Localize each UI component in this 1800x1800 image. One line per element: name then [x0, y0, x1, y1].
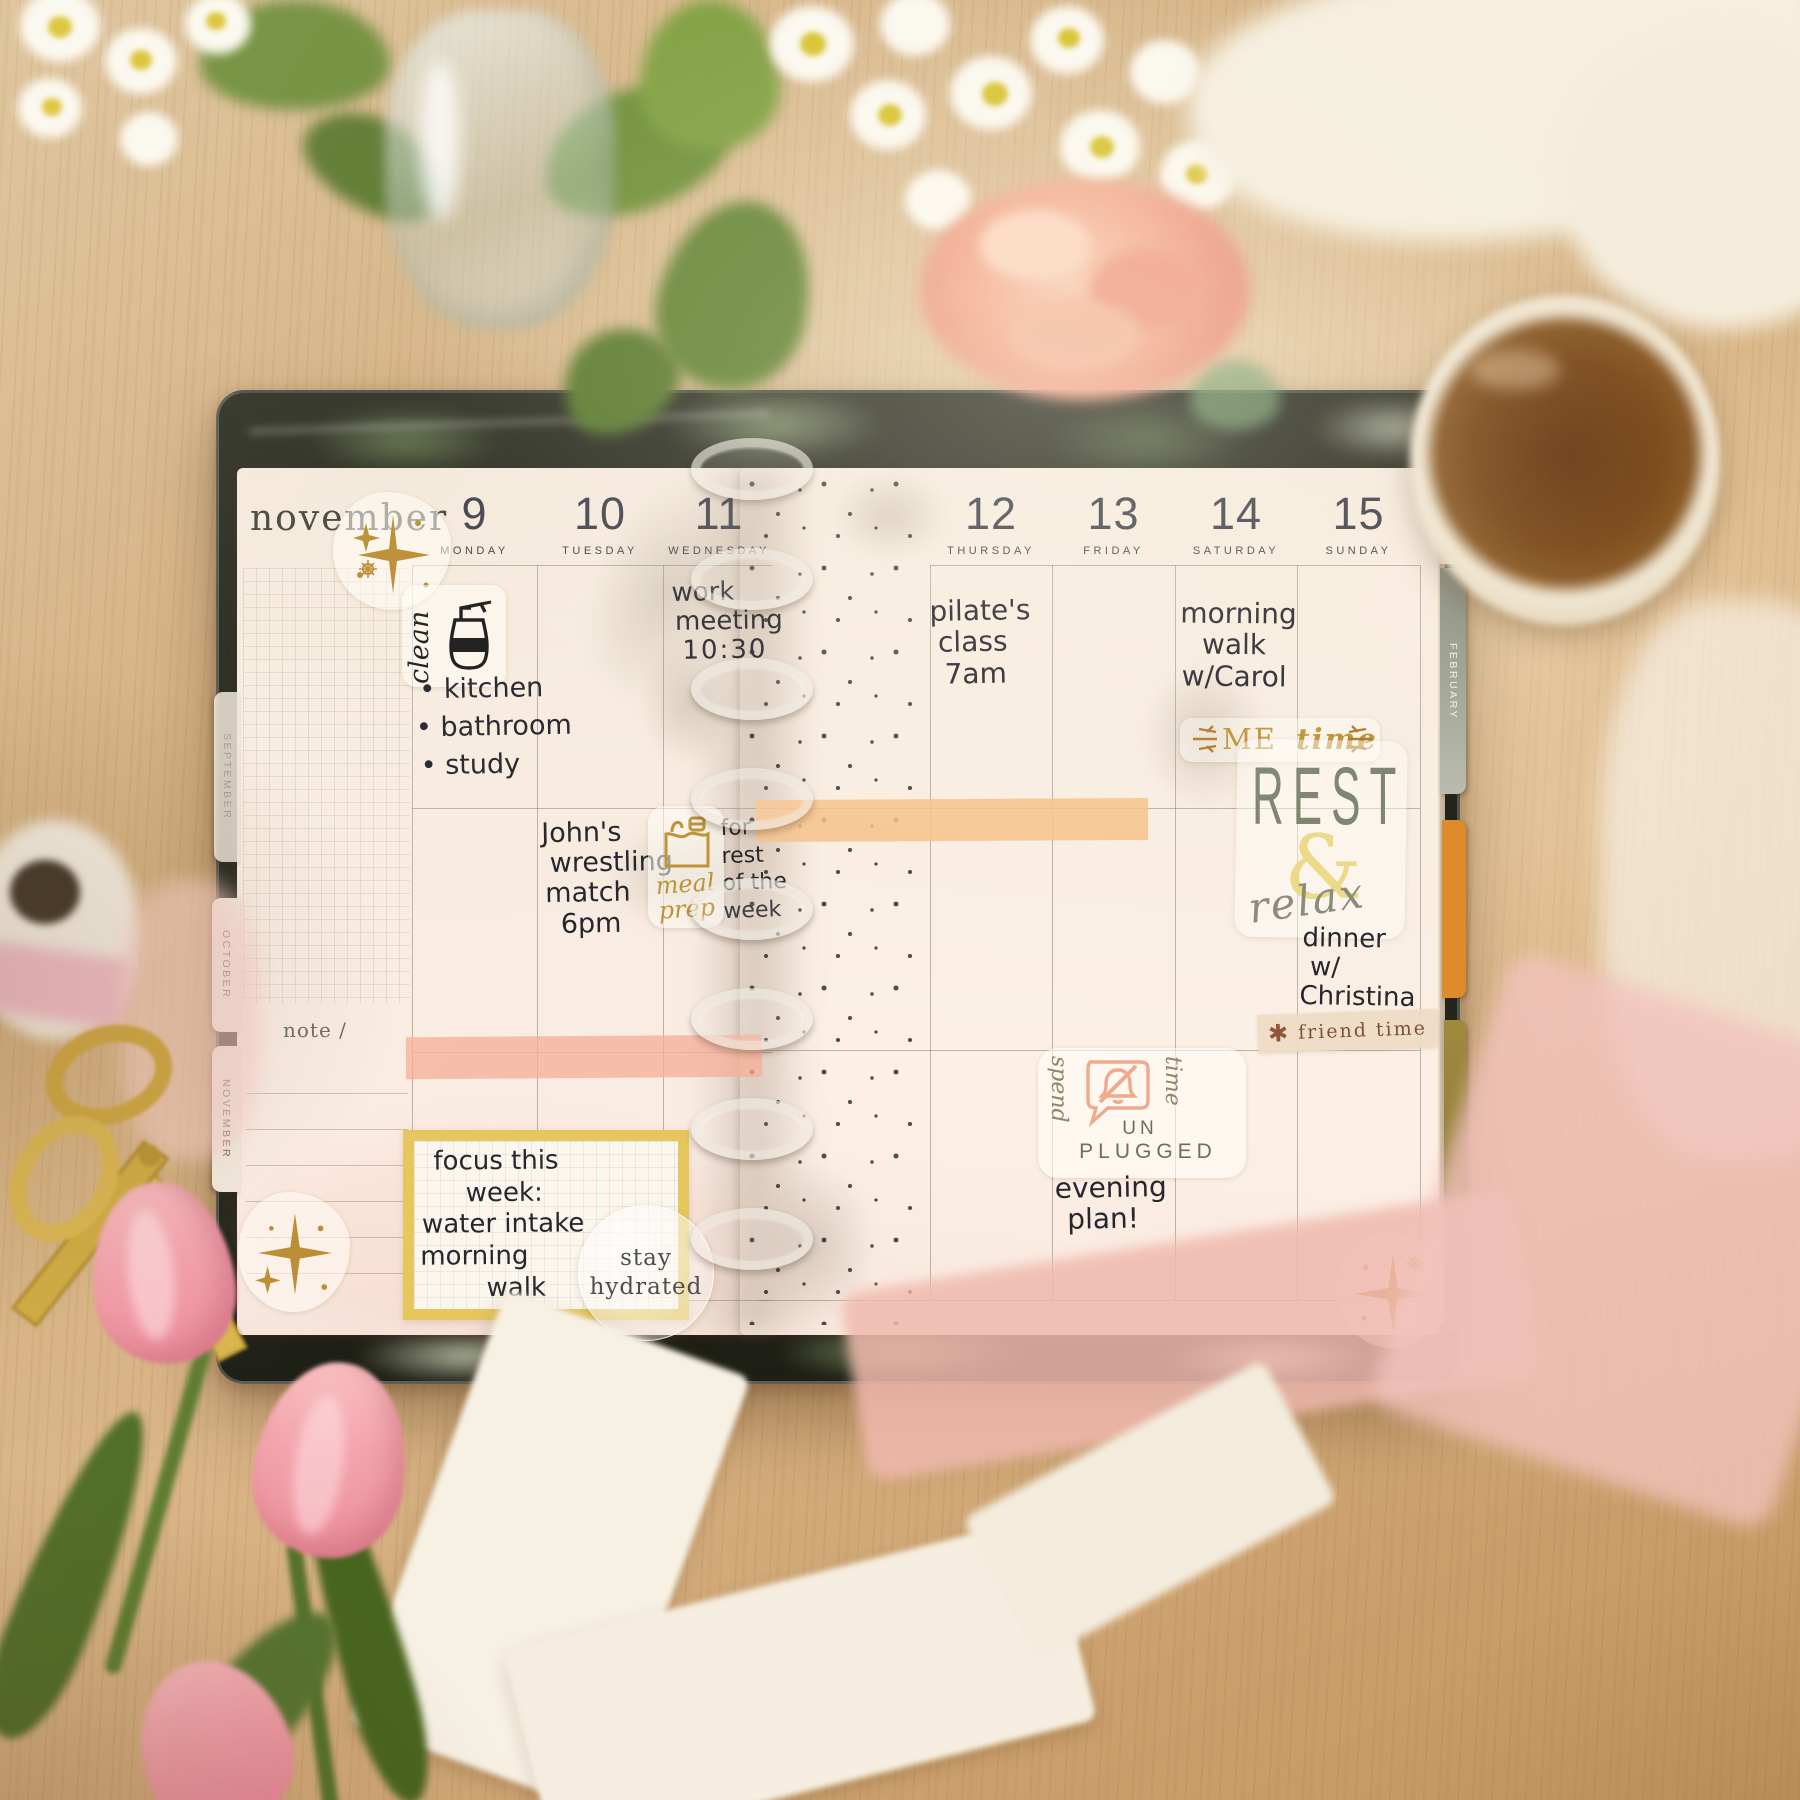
leaf: [1190, 360, 1280, 430]
hw-line: bathroom: [440, 709, 572, 742]
daisy-center: [800, 32, 826, 56]
daisy-flower: [120, 112, 178, 166]
glass-vase: [385, 10, 615, 330]
binder-disc: [691, 1098, 813, 1160]
sidebar-grid-paper: [243, 568, 410, 1004]
grid-line: [930, 565, 1420, 566]
binder-disc: [691, 548, 813, 610]
tab-february: FEBRUARY: [1440, 568, 1466, 794]
daisy-center: [1186, 164, 1208, 184]
day-header: 12 THURSDAY: [930, 488, 1052, 557]
sun-rays-icon: [1183, 724, 1219, 754]
daisy-flower: [880, 0, 950, 56]
day-name: SUNDAY: [1297, 545, 1420, 557]
daisy-center: [1058, 28, 1080, 48]
highlight-stripe-right: [756, 798, 1148, 842]
binder-disc: [691, 878, 813, 940]
asterisk-icon: ✱: [1268, 1019, 1289, 1049]
hw-line: morning: [1180, 597, 1297, 629]
hw-line: • study: [420, 744, 572, 784]
day-number: 14: [1175, 488, 1297, 540]
hw-line: • kitchen: [419, 669, 571, 709]
day-number: 13: [1052, 488, 1175, 540]
binder-disc: [691, 768, 813, 830]
binder-disc: [691, 1208, 813, 1270]
tab-label: SEPTEMBER: [221, 733, 233, 820]
day-header: 13 FRIDAY: [1052, 488, 1175, 557]
spray-bottle-icon: [441, 592, 497, 676]
daisy-center: [878, 104, 902, 126]
hw-line: water intake: [422, 1209, 585, 1242]
binder-disc: [691, 438, 813, 500]
hw-line: 7am: [944, 657, 1032, 690]
hw-line: • bathroom: [416, 706, 572, 747]
daisy-center: [130, 50, 152, 70]
hw-line: focus this: [433, 1145, 584, 1178]
hw-line: Christina: [1299, 982, 1415, 1013]
hw-line: evening: [1054, 1171, 1167, 1204]
entry-pilates-class: pilate's class 7am: [929, 594, 1032, 690]
grid-line: [1420, 565, 1421, 1300]
entry-dinner: dinner w/ Christina: [1301, 924, 1416, 1013]
hw-line: class: [938, 625, 1032, 658]
entry-evening-plan: evening plan!: [1054, 1171, 1167, 1236]
grid-line: [1175, 565, 1176, 1300]
day-number: 15: [1297, 488, 1420, 540]
binder-disc: [691, 988, 813, 1050]
hw-line: hydrated: [588, 1273, 704, 1302]
bullet: •: [419, 674, 435, 705]
entry-clean-list: • kitchen • bathroom • study: [419, 669, 573, 785]
day-header: 10 TUESDAY: [537, 488, 663, 557]
plugged-label: PLUGGED: [1064, 1140, 1232, 1164]
day-name: SATURDAY: [1175, 545, 1297, 557]
entry-focus-week: focus this week: water intake morning wa…: [427, 1145, 585, 1305]
hw-line: stay: [588, 1244, 704, 1273]
spool-hole: [10, 860, 80, 924]
entry-morning-walk: morning walk w/Carol: [1180, 597, 1297, 692]
tab-orange: [1442, 820, 1466, 998]
friend-time-sticker: ✱ friend time: [1257, 1009, 1438, 1053]
hw-line: w/Carol: [1182, 660, 1297, 692]
day-name: TUESDAY: [537, 545, 663, 557]
hw-line: w/: [1310, 953, 1416, 984]
day-name: FRIDAY: [1052, 545, 1175, 557]
hw-line: morning: [420, 1240, 585, 1273]
hw-line: rest: [721, 840, 786, 870]
tab-label: FEBRUARY: [1447, 643, 1459, 720]
daisy-center: [206, 12, 226, 30]
peony-petal: [1010, 300, 1140, 370]
binder-disc: [691, 658, 813, 720]
daisy-center: [48, 16, 72, 38]
spend-label: spend: [1046, 1056, 1071, 1140]
day-header: 15 SUNDAY: [1297, 488, 1420, 557]
un-label: UN: [1108, 1118, 1172, 1140]
hw-line: dinner: [1302, 924, 1416, 955]
wood-desk: note / november 9 MONDAY 10 TUESDAY 11 W…: [0, 0, 1800, 1800]
friend-time-label: friend time: [1298, 1017, 1428, 1043]
hw-line: walk: [1202, 629, 1297, 661]
daisy-center: [982, 82, 1008, 106]
day-number: 10: [537, 488, 663, 540]
hw-line: kitchen: [444, 672, 544, 705]
vase-highlight: [420, 60, 460, 220]
hw-line: pilate's: [929, 594, 1031, 627]
day-name: THURSDAY: [930, 545, 1052, 557]
hw-line: week:: [466, 1177, 585, 1210]
leaf: [640, 0, 780, 150]
daisy-center: [1090, 136, 1114, 158]
tab-september: SEPTEMBER: [214, 692, 240, 862]
hw-line: meeting: [675, 606, 783, 637]
stay-hydrated-label: stay hydrated: [588, 1244, 704, 1302]
peony-petal: [980, 210, 1090, 280]
coffee-glint: [1470, 350, 1560, 390]
day-header: 14 SATURDAY: [1175, 488, 1297, 557]
hw-line: study: [445, 748, 520, 780]
daisy-center: [42, 98, 62, 116]
highlight-stripe-left: [406, 1035, 762, 1079]
grid-line: [1052, 565, 1053, 1300]
hw-line: plan!: [1067, 1202, 1168, 1235]
clean-sticker-label: clean: [404, 590, 435, 684]
coffee-cup: [1410, 295, 1720, 625]
day-number: 12: [930, 488, 1052, 540]
